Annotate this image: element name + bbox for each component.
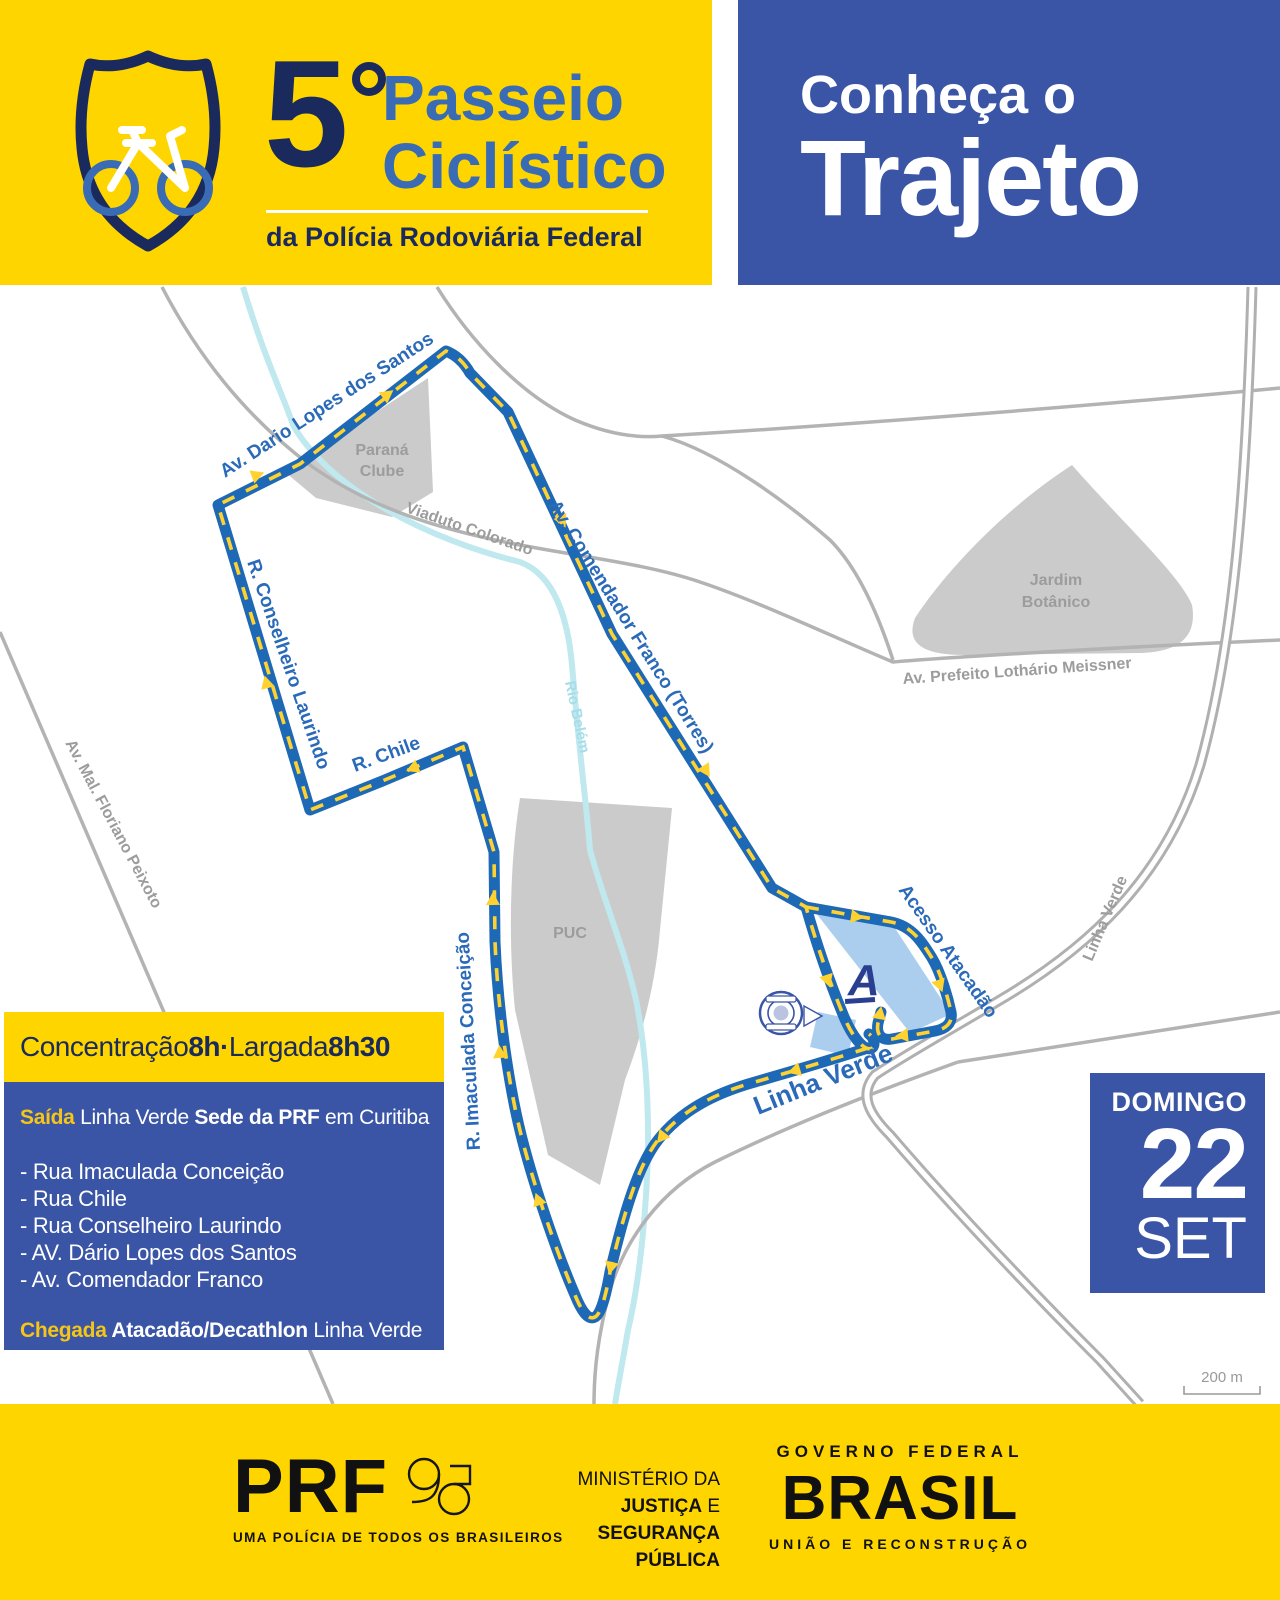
area-label-jardim-1: Jardim: [1030, 572, 1082, 589]
chegada-text: Linha Verde: [308, 1319, 422, 1342]
ministry-logo-block: MINISTÉRIO DA JUSTIÇA E SEGURANÇA PÚBLIC…: [520, 1466, 720, 1574]
list-item: - Rua Imaculada Conceição: [20, 1158, 430, 1185]
governo-federal-label: GOVERNO FEDERAL: [752, 1442, 1048, 1462]
saida-key: Saída: [20, 1106, 75, 1129]
schedule-largada-label: Largada: [229, 1031, 328, 1063]
chegada-key: Chegada: [20, 1319, 107, 1342]
event-poster: A: [0, 0, 1280, 1600]
jardim-botanico-area: [912, 465, 1192, 655]
list-item: - Av. Comendador Franco: [20, 1266, 430, 1293]
street-label-floriano: Av. Mal. Floriano Peixoto: [61, 737, 165, 912]
river-label-rio-belem: Rio Belém: [561, 679, 593, 754]
schedule-bar: Concentração 8h · Largada 8h30: [4, 1012, 444, 1082]
saida-bold: Sede da PRF: [194, 1106, 319, 1129]
uniao-reconstrucao-label: UNIÃO E RECONSTRUÇÃO: [752, 1536, 1048, 1552]
road-linha-verde-east: [958, 1012, 1280, 1062]
schedule-separator: ·: [220, 1031, 229, 1063]
prf-95-logo: [400, 1456, 484, 1518]
chegada-line: Chegada Atacadão/Decathlon Linha Verde: [20, 1319, 430, 1343]
area-label-jardim-2: Botânico: [1022, 594, 1091, 611]
ministry-line2-bold: JUSTIÇA: [621, 1496, 702, 1517]
saida-text2: em Curitiba: [319, 1106, 429, 1129]
event-date-box: DOMINGO 22 SET: [1090, 1073, 1265, 1293]
street-label-linha-verde-road: Linha Verde: [1080, 873, 1131, 963]
governo-federal-block: GOVERNO FEDERAL BRASIL UNIÃO E RECONSTRU…: [752, 1442, 1048, 1552]
road-north-branch: [437, 287, 893, 660]
prf-cycling-shield-logo: [48, 38, 248, 268]
prf-logo-block: PRF UMA POLÍCIA DE TODOS OS BRASILEIROS: [233, 1456, 564, 1545]
prf-logo-text: PRF: [233, 1456, 388, 1518]
header-divider: [266, 210, 648, 213]
area-label-parana-clube-2: Clube: [360, 463, 405, 480]
date-day: 22: [1090, 1118, 1247, 1210]
prf-badge-icon: [760, 992, 802, 1034]
header-left-panel: 5 Passeio Ciclístico da Polícia Rodoviár…: [0, 0, 712, 285]
event-title-line1: Passeio: [382, 66, 624, 130]
event-title-line2: Ciclístico: [382, 134, 667, 198]
area-label-puc: PUC: [553, 925, 587, 942]
route-street-list: - Rua Imaculada Conceição - Rua Chile - …: [20, 1158, 430, 1293]
scale-label: 200 m: [1201, 1369, 1243, 1386]
event-subtitle: da Polícia Rodoviária Federal: [266, 222, 643, 253]
route-callout-big: Trajeto: [800, 122, 1280, 234]
event-number: 5: [264, 38, 349, 190]
saida-text1: Linha Verde: [75, 1106, 195, 1129]
ministry-line1: MINISTÉRIO DA: [520, 1466, 720, 1493]
ministry-line3: SEGURANÇA PÚBLICA: [520, 1520, 720, 1574]
ministry-line2: JUSTIÇA E: [520, 1493, 720, 1520]
footer-bar: PRF UMA POLÍCIA DE TODOS OS BRASILEIROS …: [0, 1404, 1280, 1600]
schedule-concentracao-label: Concentração: [20, 1031, 188, 1063]
area-label-parana-clube-1: Paraná: [355, 442, 408, 459]
road-northeast-branch: [662, 388, 1280, 436]
bicycle-icon: [87, 130, 209, 212]
list-item: - Rua Conselheiro Laurindo: [20, 1212, 430, 1239]
schedule-concentracao-time: 8h: [188, 1031, 220, 1063]
date-month: SET: [1090, 1210, 1247, 1268]
degree-ring-icon: [352, 62, 386, 96]
brasil-logo: BRASIL: [752, 1462, 1048, 1536]
chegada-bold: Atacadão/Decathlon: [107, 1319, 308, 1342]
route-callout-small: Conheça o: [800, 68, 1280, 122]
prf-tagline: UMA POLÍCIA DE TODOS OS BRASILEIROS: [233, 1530, 564, 1545]
map-scale: 200 m: [1184, 1369, 1260, 1394]
saida-line: Saída Linha Verde Sede da PRF em Curitib…: [20, 1106, 430, 1130]
header-right-panel: Conheça o Trajeto: [738, 0, 1280, 285]
street-label-imaculada: R. Imaculada Conceição: [453, 931, 485, 1150]
scale-bracket: [1184, 1386, 1260, 1394]
route-details-box: Saída Linha Verde Sede da PRF em Curitib…: [4, 1082, 444, 1350]
list-item: - Rua Chile: [20, 1185, 430, 1212]
ministry-line2-rest: E: [702, 1496, 720, 1517]
schedule-largada-time: 8h30: [328, 1031, 390, 1063]
list-item: - AV. Dário Lopes dos Santos: [20, 1239, 430, 1266]
